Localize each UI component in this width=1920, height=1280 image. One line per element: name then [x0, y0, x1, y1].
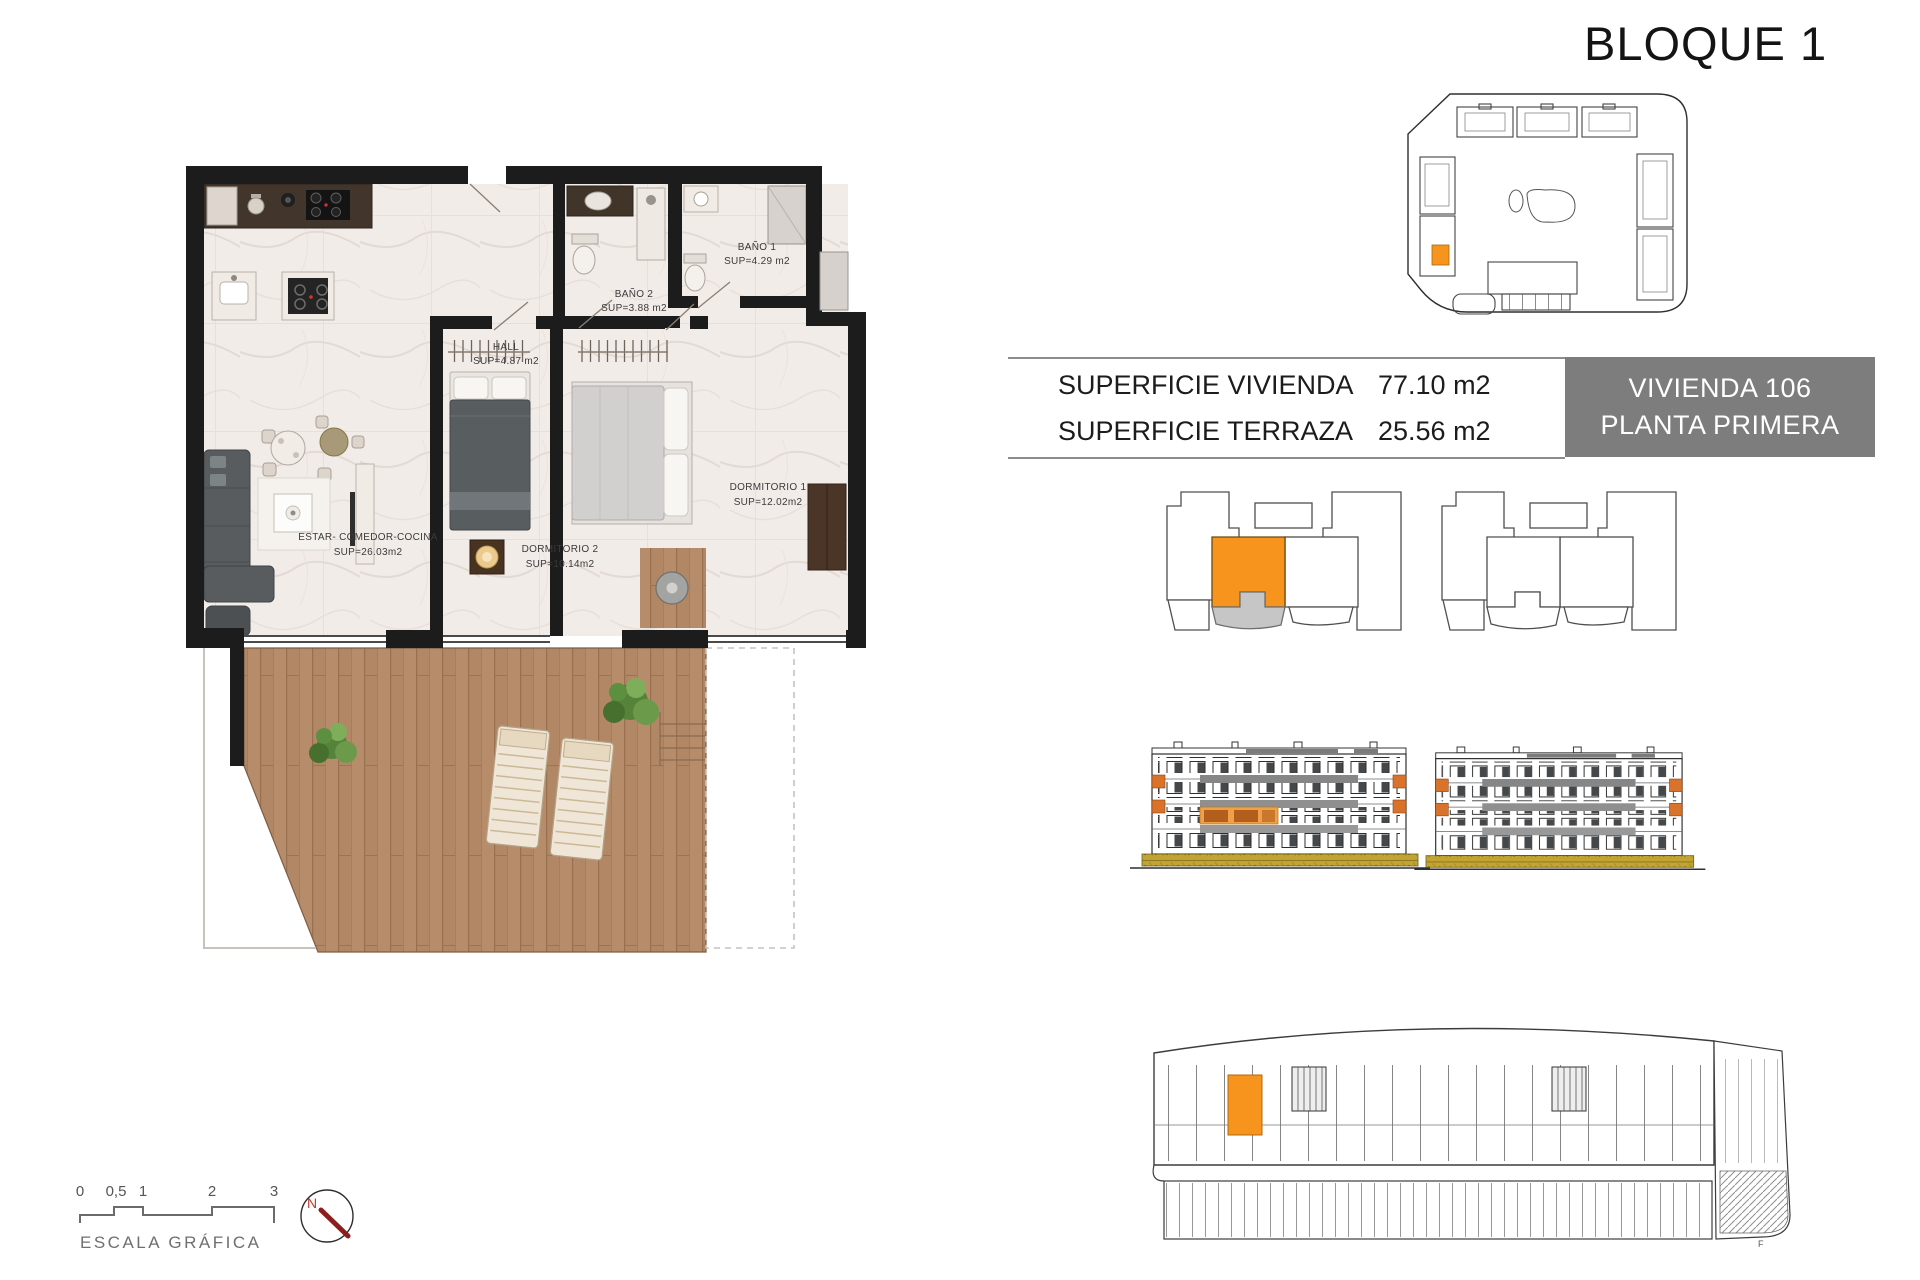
entry-opening [468, 166, 506, 184]
stair-core-1 [1292, 1067, 1326, 1111]
room-label-hall-name: HALL [493, 342, 519, 353]
scale-bar-label: ESCALA GRÁFICA [80, 1233, 261, 1252]
kitchen-cooktop-island [282, 272, 334, 320]
boundary-ghost-right [706, 648, 794, 948]
room-label-bed1-area: SUP=12.02m2 [734, 497, 803, 508]
room-label-living-name: ESTAR- COMEDOR-COCINA [298, 532, 437, 543]
glass-doors [244, 636, 846, 642]
bottom-plan-note: F [1758, 1239, 1764, 1249]
room-label-bath1-name: BAÑO 1 [738, 240, 777, 253]
room-label-bath2-name: BAÑO 2 [615, 287, 654, 300]
round-side-table-center [667, 583, 678, 594]
scale-bar-steps [80, 1207, 274, 1223]
room-label-bath1-area: SUP=4.29 m2 [724, 256, 790, 267]
exterior-niche [820, 252, 848, 310]
scale-tick-05: 0,5 [106, 1183, 127, 1200]
elevation-highlight-unit [1200, 807, 1278, 824]
kitchen-counter [204, 184, 372, 228]
apartment-floor-plan: ESTAR- COMEDOR-COCINA SUP=26.03m2 HALL S… [186, 166, 866, 952]
site-highlight-unit [1432, 245, 1449, 265]
stair-core-2 [1552, 1067, 1586, 1111]
room-label-living-area: SUP=26.03m2 [334, 547, 403, 558]
unit-key-plan-left [1167, 492, 1401, 630]
room-label-bed2-area: SUP=10.14m2 [526, 559, 595, 570]
elevation-right [1414, 747, 1705, 869]
plan-sheet: BLOQUE 1 SUPERFICIE VIVIENDA 77.10 m2 SU… [0, 0, 1920, 1280]
scale-bar: 0 0,5 1 2 3 ESCALA GRÁFICA [76, 1183, 278, 1252]
room-label-bath2-area: SUP=3.88 m2 [601, 303, 667, 314]
scale-tick-2: 2 [208, 1183, 216, 1200]
room-label-bed2-name: DORMITORIO 2 [522, 544, 599, 555]
unit-key-plan-right [1442, 492, 1676, 630]
drawing-canvas: ESTAR- COMEDOR-COCINA SUP=26.03m2 HALL S… [0, 0, 1920, 1280]
kitchen-sink-island [212, 272, 256, 320]
scale-tick-3: 3 [270, 1183, 278, 1200]
scale-tick-1: 1 [139, 1183, 147, 1200]
room-label-hall-area: SUP=4.87 m2 [473, 356, 539, 367]
scale-tick-0: 0 [76, 1183, 84, 1200]
compass: N [301, 1190, 353, 1242]
site-key-plan [1408, 94, 1687, 314]
compass-north-label: N [307, 1195, 317, 1211]
bottom-plan: F [1153, 1029, 1790, 1250]
room-label-bed1-name: DORMITORIO 1 [730, 482, 807, 493]
bottom-plan-highlight-unit [1228, 1075, 1262, 1135]
elevation-left [1130, 742, 1430, 868]
